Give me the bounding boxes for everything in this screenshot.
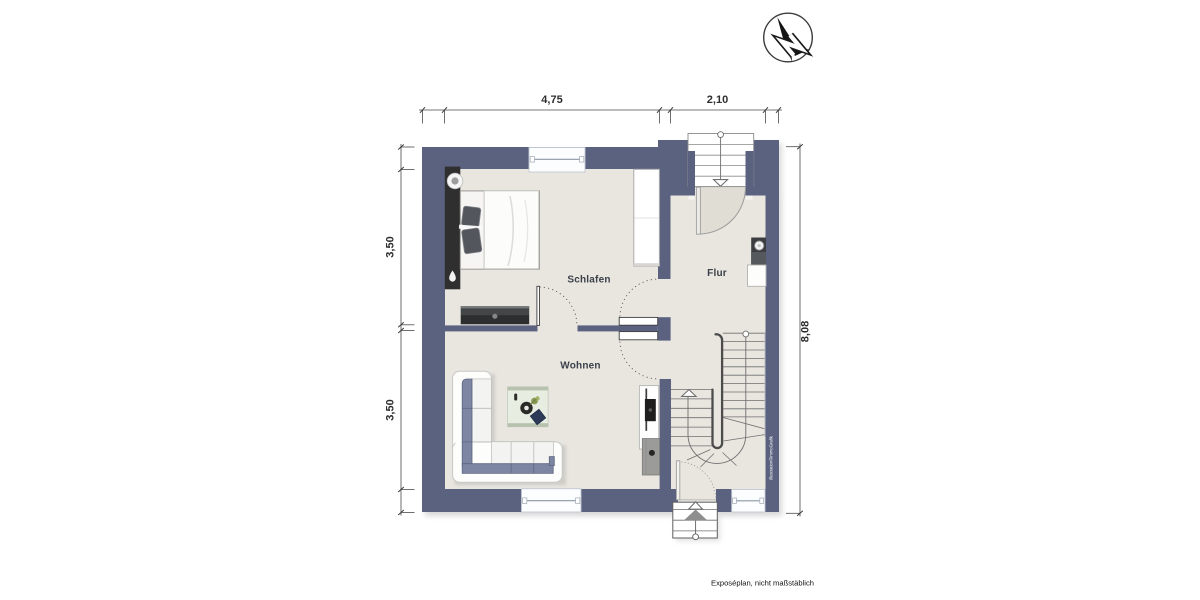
svg-text:2,10: 2,10 — [707, 94, 728, 106]
svg-text:Illustration©ImmoGrafik: Illustration©ImmoGrafik — [768, 435, 773, 480]
svg-text:Wohnen: Wohnen — [560, 361, 600, 372]
svg-text:8,08: 8,08 — [800, 321, 812, 342]
svg-text:3,50: 3,50 — [385, 399, 397, 420]
svg-text:Flur: Flur — [707, 268, 727, 279]
svg-text:Schlafen: Schlafen — [567, 275, 610, 286]
svg-text:3,50: 3,50 — [385, 236, 397, 257]
svg-text:4,75: 4,75 — [541, 94, 562, 106]
svg-text:Exposéplan, nicht maßstäblich: Exposéplan, nicht maßstäblich — [711, 579, 814, 588]
